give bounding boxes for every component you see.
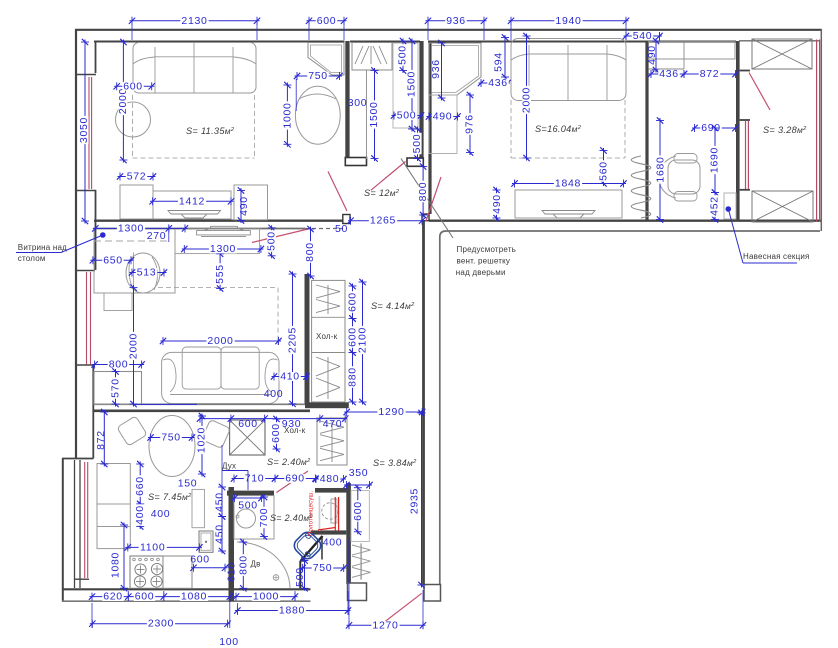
svg-text:540: 540 [633, 30, 653, 42]
svg-text:1300: 1300 [210, 243, 236, 255]
svg-text:555: 555 [214, 264, 226, 284]
svg-text:872: 872 [95, 430, 107, 450]
svg-text:270: 270 [147, 230, 167, 242]
svg-text:600: 600 [190, 554, 210, 566]
svg-text:S=16.04м2: S=16.04м2 [535, 124, 582, 134]
svg-text:690: 690 [285, 473, 305, 485]
svg-text:410: 410 [280, 371, 300, 383]
svg-text:S= 3.28м2: S= 3.28м2 [763, 125, 807, 135]
svg-text:500: 500 [294, 567, 306, 587]
svg-text:490: 490 [433, 111, 453, 123]
svg-text:350: 350 [349, 467, 369, 479]
svg-text:столом: столом [18, 254, 46, 263]
svg-text:650: 650 [103, 254, 123, 266]
svg-text:600: 600 [123, 80, 143, 92]
svg-text:1500: 1500 [368, 101, 380, 127]
svg-text:450: 450 [214, 524, 226, 544]
svg-text:2205: 2205 [287, 327, 299, 353]
svg-text:100: 100 [219, 636, 239, 648]
svg-text:620: 620 [103, 591, 123, 603]
svg-text:1270: 1270 [372, 619, 398, 631]
svg-text:660: 660 [134, 476, 146, 496]
svg-text:1000: 1000 [281, 102, 293, 128]
svg-text:436: 436 [659, 68, 679, 80]
svg-text:600: 600 [135, 591, 155, 603]
svg-text:500: 500 [397, 45, 409, 65]
svg-text:500: 500 [238, 500, 258, 512]
svg-text:2935: 2935 [409, 488, 421, 514]
svg-text:2130: 2130 [181, 15, 207, 27]
svg-text:3050: 3050 [78, 117, 90, 143]
svg-text:700: 700 [258, 508, 270, 528]
svg-text:S= 7.45м2: S= 7.45м2 [148, 492, 192, 502]
svg-text:800: 800 [238, 555, 250, 575]
svg-text:Хол-к: Хол-к [284, 426, 306, 435]
svg-text:936: 936 [446, 15, 466, 27]
svg-text:2100: 2100 [357, 327, 369, 353]
svg-text:2000: 2000 [128, 333, 140, 359]
svg-text:150: 150 [178, 478, 198, 490]
svg-text:400: 400 [151, 508, 171, 520]
svg-text:600: 600 [238, 418, 258, 430]
svg-text:S= 3.84м2: S= 3.84м2 [373, 458, 417, 468]
svg-text:450: 450 [214, 492, 226, 512]
svg-text:1000: 1000 [253, 591, 279, 603]
svg-text:750: 750 [161, 432, 181, 444]
svg-text:600: 600 [317, 15, 337, 27]
svg-text:880: 880 [346, 367, 358, 387]
svg-text:1880: 1880 [279, 605, 305, 617]
svg-text:Предусмотреть: Предусмотреть [457, 245, 517, 254]
svg-text:1500: 1500 [406, 71, 418, 97]
svg-text:1690: 1690 [709, 147, 721, 173]
svg-text:Дух: Дух [222, 462, 236, 471]
svg-text:572: 572 [127, 171, 147, 183]
svg-text:Хол-к: Хол-к [316, 332, 338, 341]
svg-text:600: 600 [270, 423, 282, 443]
svg-text:560: 560 [598, 161, 610, 181]
svg-text:400: 400 [264, 388, 284, 400]
svg-text:вент. решетку: вент. решетку [457, 257, 511, 266]
svg-text:872: 872 [700, 68, 720, 80]
svg-text:50: 50 [335, 223, 348, 235]
svg-text:490: 490 [238, 196, 250, 216]
svg-text:1300: 1300 [118, 223, 144, 235]
svg-text:594: 594 [492, 52, 504, 72]
svg-text:600: 600 [346, 292, 358, 312]
svg-text:S= 11.35м2: S= 11.35м2 [186, 126, 235, 136]
svg-text:570: 570 [109, 378, 121, 398]
svg-text:2000: 2000 [521, 87, 533, 113]
svg-text:400: 400 [323, 537, 343, 549]
svg-text:500: 500 [397, 110, 417, 122]
svg-text:S= 2.40м2: S= 2.40м2 [267, 457, 311, 467]
svg-text:800: 800 [109, 359, 129, 371]
svg-text:Навесная секция: Навесная секция [743, 252, 810, 261]
svg-text:480: 480 [320, 473, 340, 485]
svg-text:300: 300 [348, 97, 368, 109]
svg-text:1080: 1080 [110, 552, 122, 578]
svg-text:500: 500 [266, 231, 278, 251]
svg-text:1100: 1100 [140, 541, 165, 553]
svg-text:500: 500 [411, 134, 423, 154]
svg-text:1020: 1020 [196, 427, 208, 453]
svg-text:513: 513 [137, 267, 157, 279]
svg-text:976: 976 [464, 114, 476, 134]
svg-text:936: 936 [430, 59, 442, 79]
svg-text:452: 452 [709, 196, 721, 216]
svg-text:над дверьми: над дверьми [456, 268, 506, 277]
svg-text:400: 400 [134, 505, 146, 525]
svg-text:600: 600 [352, 501, 364, 521]
svg-text:1940: 1940 [555, 15, 581, 27]
svg-text:1680: 1680 [654, 156, 666, 182]
svg-text:S= 12м2: S= 12м2 [364, 188, 400, 198]
svg-text:750: 750 [313, 562, 333, 574]
svg-text:2300: 2300 [148, 618, 174, 630]
svg-text:610: 610 [225, 562, 237, 582]
svg-text:470: 470 [323, 418, 343, 430]
svg-text:750: 750 [308, 70, 328, 82]
svg-text:490: 490 [491, 194, 503, 214]
svg-text:1848: 1848 [555, 178, 581, 190]
svg-text:2000: 2000 [207, 335, 233, 347]
svg-text:1265: 1265 [370, 215, 396, 227]
svg-text:1080: 1080 [181, 591, 207, 603]
svg-text:S= 4.14м2: S= 4.14м2 [371, 301, 415, 311]
svg-text:1412: 1412 [179, 195, 205, 207]
svg-text:Витрина над: Витрина над [18, 243, 67, 252]
svg-text:1290: 1290 [378, 406, 404, 418]
svg-text:800: 800 [417, 182, 429, 202]
svg-text:436: 436 [488, 77, 508, 89]
svg-text:Дв: Дв [251, 560, 261, 569]
svg-text:490: 490 [646, 45, 658, 65]
svg-text:S= 2.40м2: S= 2.40м2 [270, 513, 313, 523]
svg-text:800: 800 [304, 242, 316, 262]
